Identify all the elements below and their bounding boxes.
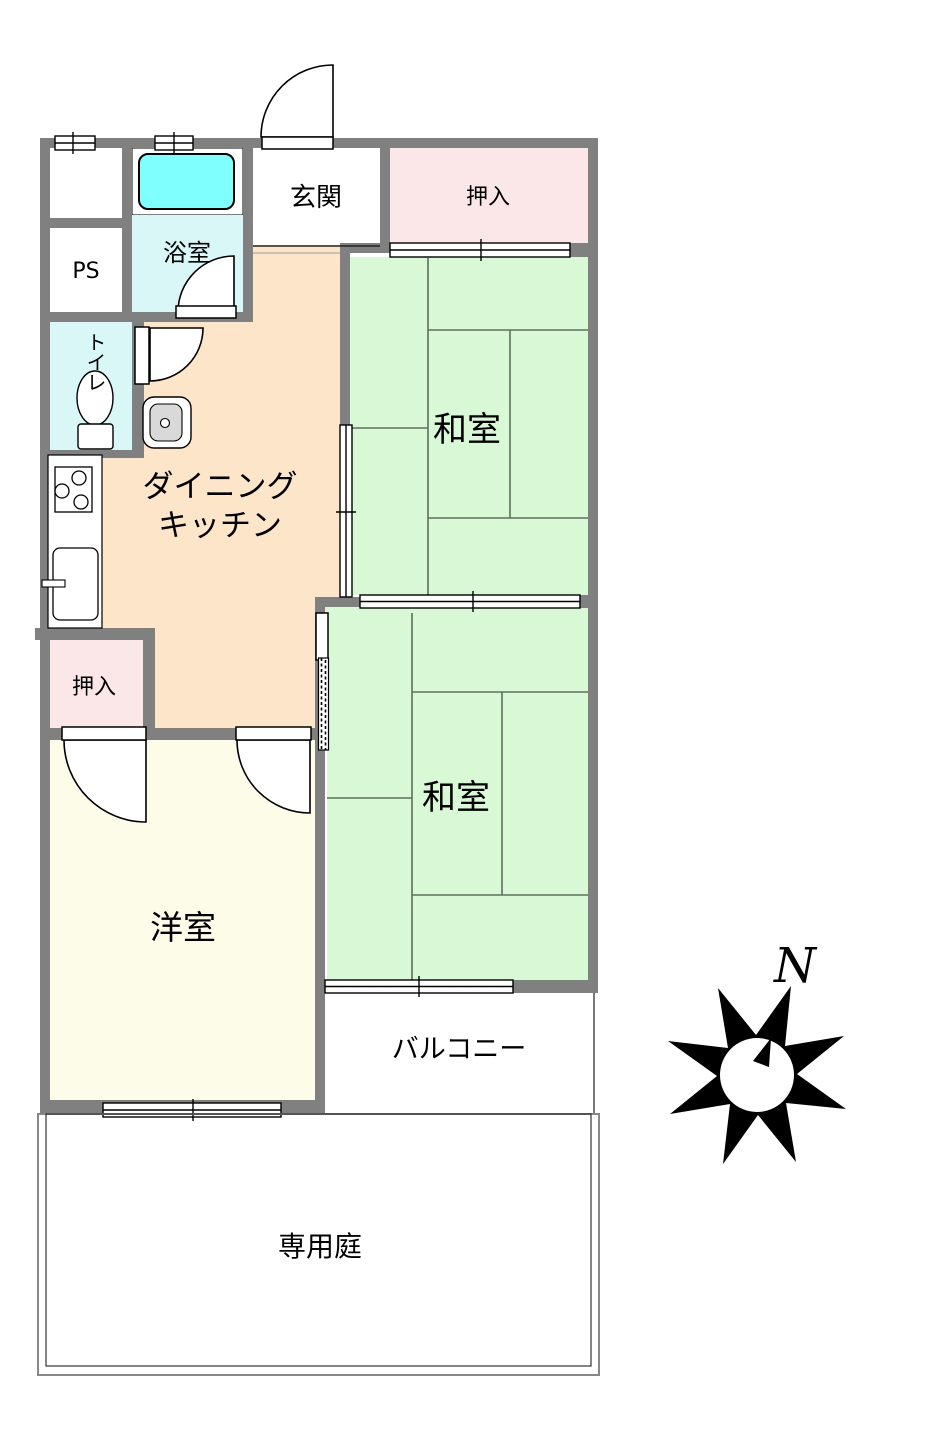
wash-basin bbox=[143, 397, 191, 448]
kitchen-counter bbox=[42, 455, 102, 628]
label-closet-bottom: 押入 bbox=[72, 675, 116, 700]
label-balcony: バルコニー bbox=[392, 1034, 526, 1065]
room-utility bbox=[50, 148, 122, 218]
bathtub bbox=[139, 154, 234, 209]
label-ps: PS bbox=[72, 259, 99, 284]
toilet-door-leaf bbox=[135, 327, 149, 384]
label-entrance: 玄関 bbox=[290, 183, 342, 213]
label-closet-top: 押入 bbox=[466, 185, 510, 210]
compass-icon bbox=[668, 986, 846, 1164]
entrance-door-arc bbox=[261, 65, 333, 137]
label-bath: 浴室 bbox=[163, 239, 211, 267]
folding-door-hatch bbox=[319, 658, 329, 750]
compass-circle bbox=[720, 1038, 794, 1112]
label-yoshitsu: 洋室 bbox=[150, 908, 216, 947]
entrance-door-leaf bbox=[262, 137, 333, 149]
label-washitsu-top: 和室 bbox=[433, 410, 501, 450]
label-washitsu-bottom: 和室 bbox=[422, 778, 490, 818]
faucet bbox=[42, 580, 65, 587]
label-dk-line1: ダイニング bbox=[143, 469, 298, 505]
label-dk-line2: キッチン bbox=[158, 508, 282, 544]
label-toilet: トイレ bbox=[83, 332, 107, 392]
label-north: N bbox=[773, 938, 818, 994]
label-garden: 専用庭 bbox=[278, 1230, 362, 1263]
window-bathroom bbox=[155, 132, 193, 154]
floor-plan-canvas: PS 浴室 玄関 押入 トイレ ダイニング キッチン 和室 押入 和室 洋室 バ… bbox=[0, 0, 932, 1438]
stove bbox=[55, 467, 92, 512]
washitsu-side-door-leaf bbox=[316, 613, 328, 660]
window-top-left bbox=[55, 132, 95, 154]
window-yoshitsu-bottom bbox=[103, 1099, 281, 1121]
bathroom-door-leaf bbox=[176, 306, 236, 318]
yoshitsu-door-leaf-right bbox=[236, 727, 311, 740]
yoshitsu-door-leaf-left bbox=[62, 727, 146, 740]
floor-plan-page: PS 浴室 玄関 押入 トイレ ダイニング キッチン 和室 押入 和室 洋室 バ… bbox=[0, 0, 932, 1438]
